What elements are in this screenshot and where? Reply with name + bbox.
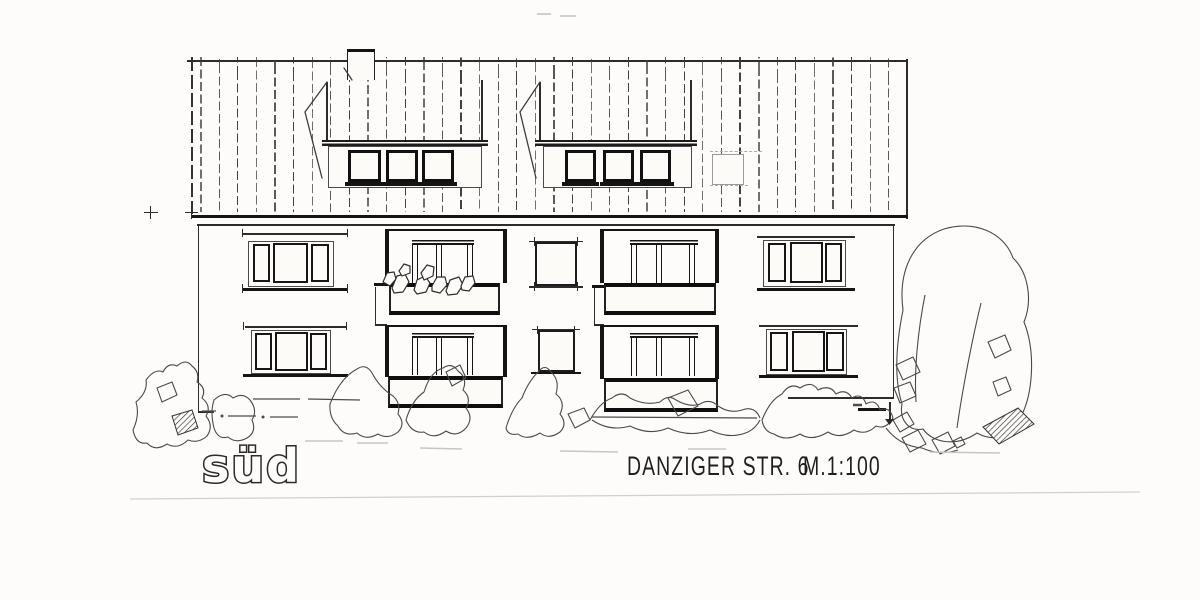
- roof-batten: [237, 57, 238, 212]
- paper-edge-line: [130, 492, 1140, 499]
- balcony-parapet-upper: [389, 283, 500, 315]
- balcony-parapet-lower: [604, 378, 718, 412]
- elevation-drawing-sheet: süd DANZIGER STR. 6 M.1:100: [0, 0, 1200, 600]
- window-pane: [770, 332, 788, 371]
- roof-batten: [758, 57, 760, 212]
- railing-post: [631, 244, 637, 283]
- railing-post: [467, 244, 473, 283]
- roof-batten: [312, 57, 314, 212]
- elevation-label-group: süd: [190, 432, 510, 502]
- window-sill: [757, 288, 855, 291]
- window-small-upper: [535, 242, 577, 286]
- sill-tick: [346, 322, 347, 330]
- roof-batten: [479, 57, 480, 212]
- dormer-window: [603, 150, 634, 182]
- window-pane: [273, 243, 308, 283]
- railing-top-rail: [412, 333, 474, 338]
- roof-batten: [665, 57, 666, 212]
- dormer-edge: [326, 82, 328, 140]
- roof-batten: [405, 57, 406, 212]
- sill-tick: [577, 282, 578, 291]
- roof-batten: [646, 57, 648, 212]
- roof-batten: [609, 57, 610, 212]
- roof-batten: [200, 57, 202, 212]
- window-sill: [242, 288, 348, 291]
- railing-top-rail: [630, 333, 698, 338]
- eave-gutter-line: [192, 215, 908, 218]
- roof-batten: [535, 57, 537, 212]
- railing-top-rail: [412, 240, 474, 245]
- wall-right: [893, 224, 894, 399]
- sill-tick: [242, 229, 243, 237]
- roof-batten: [219, 57, 220, 212]
- window-pane: [792, 331, 825, 372]
- wall-left: [198, 224, 199, 412]
- dormer-window-sill: [600, 182, 637, 186]
- elevation-label: süd: [202, 439, 301, 493]
- dormer-window-sill: [419, 182, 457, 186]
- roof-batten: [423, 57, 425, 212]
- roof-batten: [274, 57, 275, 212]
- roof-batten: [721, 57, 722, 212]
- roof-batten: [367, 57, 368, 212]
- railing-post: [689, 244, 695, 283]
- window-pane: [255, 333, 272, 370]
- window-pane: [790, 242, 823, 283]
- window-pane: [825, 243, 842, 282]
- roof-batten: [628, 57, 629, 212]
- roof-batten: [330, 57, 331, 212]
- dormer-edge: [690, 80, 692, 140]
- roof-batten: [591, 57, 592, 212]
- street-label: DANZIGER STR. 6: [627, 451, 810, 482]
- bay-jamb: [503, 231, 507, 283]
- window-pane: [275, 332, 308, 371]
- railing-post: [631, 337, 637, 376]
- bay-lintel: [385, 325, 507, 327]
- roof-batten: [888, 57, 889, 212]
- window-lintel: [245, 326, 347, 328]
- roof-hatch-flashing: [710, 151, 762, 152]
- sill-tick: [242, 284, 243, 293]
- sketch-overlay: [0, 0, 1200, 600]
- railing-post: [436, 244, 442, 283]
- roof-batten: [498, 57, 499, 212]
- balcony-parapet-upper: [604, 283, 716, 315]
- scale-label: M.1:100: [803, 451, 881, 482]
- roof-batten: [684, 57, 685, 212]
- railing-post: [436, 337, 442, 375]
- base-line-right: [788, 397, 894, 399]
- roof-batten: [293, 57, 294, 212]
- railing-post: [412, 337, 418, 375]
- railing-post: [656, 244, 662, 283]
- bay-jamb: [503, 327, 507, 377]
- tree-sketch: [894, 226, 1032, 442]
- divider-wall-edge: [375, 287, 376, 325]
- window-sill: [531, 372, 581, 374]
- dormer-window-sill: [383, 182, 421, 186]
- railing-top-rail: [630, 240, 698, 245]
- bay-jamb: [385, 327, 389, 377]
- balcony-parapet-lower: [388, 376, 503, 408]
- roof-edge-right: [906, 59, 908, 219]
- sill-tick: [347, 284, 348, 293]
- dormer-window: [386, 150, 418, 182]
- bay-lintel: [600, 229, 719, 231]
- wall-top-line: [197, 224, 895, 226]
- dormer-window: [348, 150, 381, 182]
- window-sill: [759, 375, 858, 378]
- chimney: [347, 49, 375, 80]
- parapet-side-ledge: [374, 283, 389, 286]
- window-pane: [826, 332, 844, 371]
- roof-batten: [851, 57, 852, 212]
- dormer-cheek: [520, 82, 540, 178]
- roof-hatch-flashing: [710, 185, 748, 186]
- roof-batten: [832, 57, 833, 212]
- sill-tick: [347, 229, 348, 237]
- window-pane: [253, 244, 270, 282]
- ground-level-mark: [858, 408, 886, 411]
- window-pane: [311, 244, 329, 282]
- divider-wall-edge: [594, 288, 595, 325]
- dormer-window-sill: [562, 182, 599, 186]
- sill-tick: [534, 282, 535, 291]
- dormer-edge: [481, 80, 483, 140]
- sill-tick: [537, 326, 538, 334]
- roof-batten: [442, 57, 443, 212]
- roof-batten: [795, 57, 796, 212]
- roof-batten: [572, 57, 573, 212]
- sill-tick: [577, 237, 578, 246]
- dormer-cheek: [305, 82, 327, 178]
- window-pane: [768, 243, 786, 282]
- railing-post: [412, 244, 418, 283]
- eave-cross-tick: [191, 206, 192, 219]
- roof-batten: [553, 57, 554, 212]
- railing-post: [467, 337, 473, 375]
- dormer-window: [565, 150, 596, 182]
- hatched-patch: [172, 408, 1034, 444]
- window-small-lower: [538, 330, 575, 372]
- railing-post: [656, 337, 662, 376]
- bay-lintel: [385, 229, 507, 231]
- base-corner-tick: [198, 411, 214, 413]
- railing-post: [689, 337, 695, 376]
- roof-batten: [349, 57, 350, 212]
- ground-level-tick: [889, 402, 891, 420]
- window-lintel: [757, 236, 855, 238]
- bay-jamb: [600, 327, 604, 379]
- roof-batten: [814, 57, 815, 212]
- dormer-window: [640, 150, 671, 182]
- bay-jamb: [715, 231, 719, 283]
- roof-batten: [739, 57, 740, 212]
- dormer-window-sill: [345, 182, 384, 186]
- ground-line: [202, 399, 894, 425]
- roof-batten: [460, 57, 461, 212]
- bay-jamb: [600, 231, 604, 283]
- dormer-edge: [539, 82, 541, 140]
- roof-hatch: [712, 154, 744, 185]
- roof-edge-left: [191, 57, 193, 214]
- roof-batten: [386, 57, 387, 212]
- window-lintel: [759, 325, 858, 327]
- roof-batten: [256, 57, 257, 212]
- window-pane: [310, 333, 327, 370]
- dormer-window-sill: [637, 182, 674, 186]
- bay-jamb: [715, 327, 719, 379]
- window-sill: [529, 286, 583, 288]
- sill-tick: [243, 322, 244, 330]
- eave-cross-tick: [150, 206, 151, 219]
- dormer-window: [422, 150, 454, 182]
- roof-batten: [777, 57, 778, 212]
- window-lintel: [242, 233, 348, 235]
- bay-jamb: [385, 231, 389, 283]
- bay-lintel: [600, 325, 719, 327]
- sill-tick: [574, 326, 575, 334]
- sill-tick: [534, 237, 535, 246]
- window-sill: [243, 374, 348, 377]
- roof-batten: [870, 57, 872, 212]
- ridge-line: [187, 60, 908, 62]
- roof-batten: [702, 57, 703, 212]
- roof-batten: [516, 57, 517, 212]
